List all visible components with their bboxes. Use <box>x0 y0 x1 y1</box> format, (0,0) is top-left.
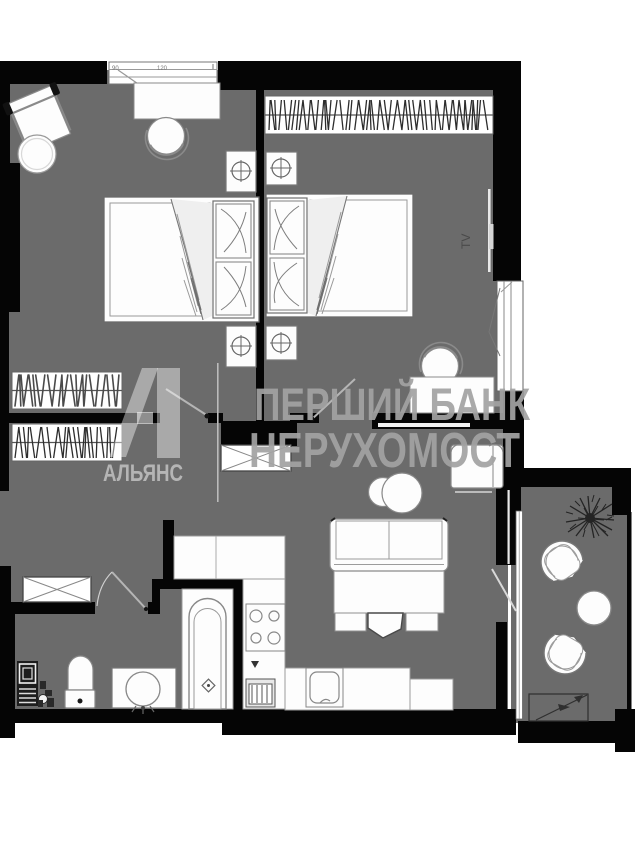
svg-text:90: 90 <box>112 66 119 72</box>
svg-text:АЛЬЯНС: АЛЬЯНС <box>103 460 183 487</box>
svg-text:ПЕРШИЙ БАНК: ПЕРШИЙ БАНК <box>254 379 530 430</box>
svg-text:TV: TV <box>459 234 473 249</box>
svg-text:НЕРУХОМОСТ: НЕРУХОМОСТ <box>249 424 520 478</box>
svg-text:120: 120 <box>157 66 168 72</box>
